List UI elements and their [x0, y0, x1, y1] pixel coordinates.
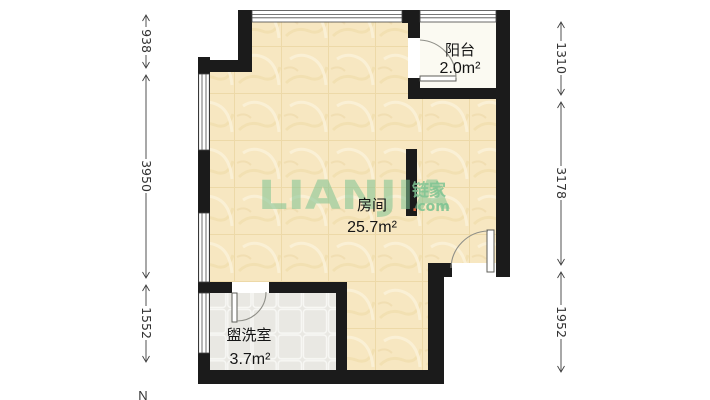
balcony-area: 2.0m²: [440, 60, 482, 77]
window-left-middle: [199, 213, 210, 282]
svg-text:1310: 1310: [554, 42, 569, 74]
washroom-area: 3.7m²: [230, 351, 272, 368]
lianjia-watermark-com: .com: [412, 199, 450, 215]
wall-step-vertical: [428, 263, 444, 370]
wall-washroom-top: [198, 282, 347, 293]
main-room-area: 25.7m²: [347, 219, 397, 236]
wall-washroom-right: [336, 282, 347, 370]
svg-text:3950: 3950: [139, 160, 154, 192]
north-indicator: N: [138, 388, 147, 400]
dimension-left-3950: 3950: [139, 75, 154, 278]
dimension-right-3178: 3178: [554, 102, 569, 265]
dimension-left-1552: 1552: [139, 285, 154, 362]
floorplan-canvas: LIANJIA 链家 .com 房间 25.7m² 阳台 2.0m² 盥洗室 3…: [0, 0, 710, 400]
svg-text:1952: 1952: [554, 306, 569, 338]
svg-text:938: 938: [139, 29, 154, 53]
washroom-label: 盥洗室: [226, 327, 271, 344]
dimension-right-1310: 1310: [554, 22, 569, 95]
floor-plan-svg: LIANJIA 链家 .com 房间 25.7m² 阳台 2.0m² 盥洗室 3…: [0, 0, 710, 400]
wall-balcony-bottom: [408, 88, 510, 99]
wall-bottom: [198, 370, 444, 384]
dimension-left-938: 938: [139, 15, 154, 68]
lianjia-watermark-cn: 链家: [412, 180, 446, 200]
wall-balcony-left-upper: [408, 10, 420, 38]
svg-text:1552: 1552: [139, 307, 154, 339]
window-left-upper: [199, 74, 210, 150]
window-top-main: [252, 11, 402, 23]
balcony-label: 阳台: [445, 42, 475, 59]
wall-right: [496, 10, 510, 277]
watermark-com-suffix: com: [417, 199, 450, 215]
dimension-right-1952: 1952: [554, 272, 569, 372]
window-top-balcony: [420, 11, 496, 23]
main-room-label: 房间: [357, 197, 387, 214]
svg-text:3178: 3178: [554, 167, 569, 199]
window-left-washroom: [199, 293, 210, 353]
